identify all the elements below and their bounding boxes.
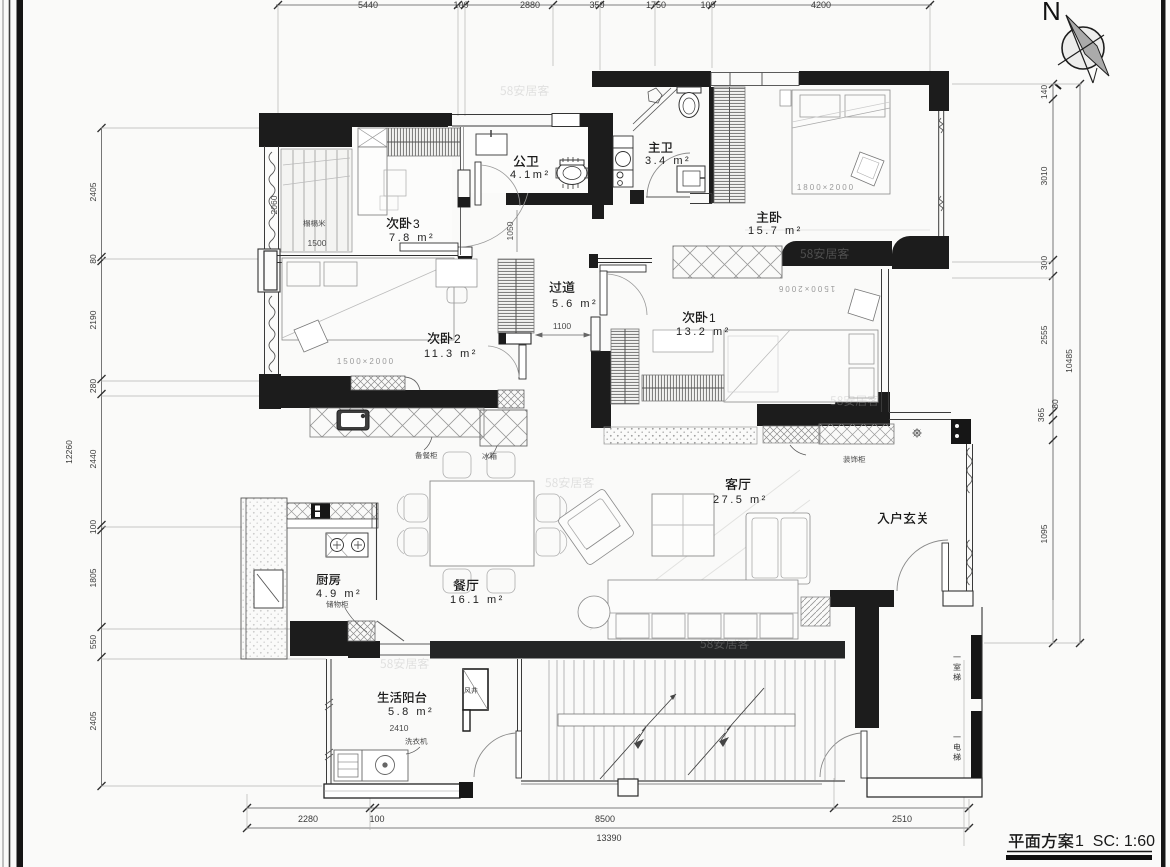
svg-text:365: 365 <box>1036 408 1046 422</box>
svg-text:1050: 1050 <box>505 221 515 240</box>
svg-text:1 SC: 1:60: 1 SC: 1:60 <box>1075 833 1155 850</box>
svg-text:1800×2000: 1800×2000 <box>797 183 855 192</box>
svg-text:100: 100 <box>453 0 468 10</box>
svg-text:2555: 2555 <box>1039 325 1049 344</box>
svg-text:140: 140 <box>1039 85 1049 99</box>
svg-text:7.8 m²: 7.8 m² <box>389 232 435 244</box>
svg-text:1095: 1095 <box>1039 524 1049 543</box>
svg-text:4.9 m²: 4.9 m² <box>316 588 362 600</box>
svg-text:350: 350 <box>589 0 604 10</box>
svg-text:16.1 m²: 16.1 m² <box>450 594 505 606</box>
svg-text:80: 80 <box>88 254 98 264</box>
svg-text:4200: 4200 <box>811 0 831 10</box>
svg-text:2190: 2190 <box>88 310 98 329</box>
svg-text:100: 100 <box>369 814 384 824</box>
svg-text:3010: 3010 <box>1039 166 1049 185</box>
svg-text:2440: 2440 <box>88 449 98 468</box>
svg-text:1500×2006: 1500×2006 <box>777 284 835 293</box>
svg-text:1500: 1500 <box>308 238 327 248</box>
svg-text:N: N <box>1042 0 1061 26</box>
svg-text:280: 280 <box>88 379 98 393</box>
svg-text:1500×2000: 1500×2000 <box>337 357 395 366</box>
svg-text:5.8 m²: 5.8 m² <box>388 706 434 718</box>
svg-text:2510: 2510 <box>892 814 912 824</box>
svg-text:550: 550 <box>88 635 98 649</box>
svg-text:2405: 2405 <box>88 711 98 730</box>
svg-text:1100: 1100 <box>553 321 572 331</box>
svg-text:2405: 2405 <box>88 182 98 201</box>
svg-text:2410: 2410 <box>390 723 409 733</box>
svg-text:1750: 1750 <box>646 0 666 10</box>
svg-text:5.6 m²: 5.6 m² <box>552 298 598 310</box>
svg-text:5440: 5440 <box>358 0 378 10</box>
svg-text:2280: 2280 <box>298 814 318 824</box>
svg-text:4.1m²: 4.1m² <box>510 169 551 181</box>
svg-text:100: 100 <box>700 0 715 10</box>
svg-text:15.7 m²: 15.7 m² <box>748 225 803 237</box>
svg-text:1: 1 <box>709 311 716 325</box>
svg-text:12260: 12260 <box>64 440 74 464</box>
svg-text:10485: 10485 <box>1064 349 1074 373</box>
svg-text:1805: 1805 <box>88 568 98 587</box>
svg-text:27.5 m²: 27.5 m² <box>713 494 768 506</box>
svg-text:13390: 13390 <box>596 833 621 843</box>
svg-text:8500: 8500 <box>595 814 615 824</box>
svg-text:2060: 2060 <box>269 195 279 214</box>
svg-text:13.2 m²: 13.2 m² <box>676 326 731 338</box>
svg-text:100: 100 <box>88 520 98 534</box>
svg-text:3.4 m²: 3.4 m² <box>645 155 691 167</box>
svg-text:2: 2 <box>454 332 461 346</box>
svg-text:11.3 m²: 11.3 m² <box>424 348 478 360</box>
svg-text:3: 3 <box>413 217 420 231</box>
svg-text:2880: 2880 <box>520 0 540 10</box>
svg-text:80: 80 <box>1050 399 1060 409</box>
svg-text:300: 300 <box>1039 256 1049 270</box>
